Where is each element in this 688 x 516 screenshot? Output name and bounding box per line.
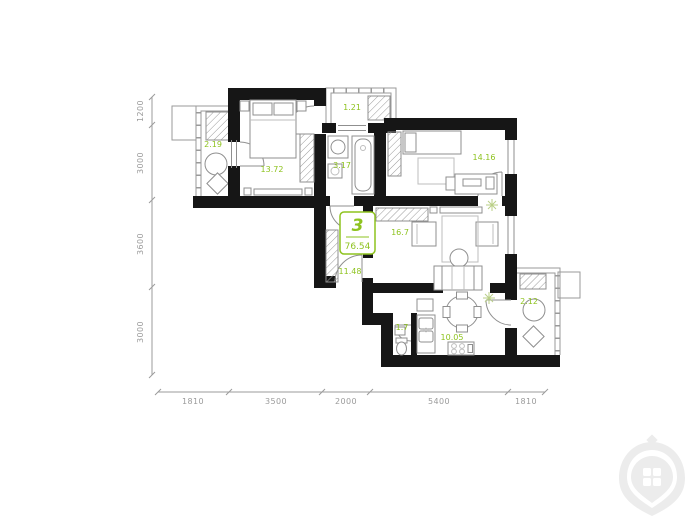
dim-left-0: 1200 xyxy=(136,100,145,122)
monitor xyxy=(463,179,481,186)
dim-left-2: 3600 xyxy=(136,233,145,255)
dim-left-1: 3000 xyxy=(136,152,145,174)
floorplan-drawing: 2.19 13.72 1.21 3.17 14.16 16.7 11.48 1.… xyxy=(0,0,688,516)
dim-bottom-3: 5400 xyxy=(428,397,450,406)
hallway-furniture xyxy=(326,230,338,282)
dimension-bottom: 1810 3500 2000 5400 1810 xyxy=(155,389,548,406)
wardrobe-hatch xyxy=(326,230,338,282)
sofa-armrest xyxy=(434,266,442,290)
area-label-bedroom-right: 14.16 xyxy=(473,153,496,162)
balcony-right xyxy=(517,268,580,355)
tv-console xyxy=(254,189,302,195)
dim-bottom-2: 2000 xyxy=(335,397,357,406)
balcony-ledge xyxy=(172,106,196,140)
area-label-balcony-right: 2.12 xyxy=(520,297,538,306)
speaker xyxy=(244,188,251,195)
dining-table xyxy=(446,296,478,328)
storage-hatch-box xyxy=(520,274,546,289)
wardrobe-hatch xyxy=(300,134,314,182)
balcony-chair xyxy=(523,326,544,347)
fridge xyxy=(417,299,433,311)
balcony-ledge xyxy=(558,272,580,298)
sofa-armrest xyxy=(474,266,482,290)
sink-bowl xyxy=(419,331,433,342)
kitchen-fixtures xyxy=(417,292,495,355)
chair xyxy=(474,307,481,318)
washbasin xyxy=(331,140,345,154)
area-label-wc: 1.7 xyxy=(396,323,409,332)
chair xyxy=(457,325,468,332)
bedroom-right-furniture xyxy=(388,131,497,194)
area-label-bathroom: 3.17 xyxy=(333,161,351,170)
dimension-left: 1200 3000 3600 3000 xyxy=(136,94,155,378)
brand-watermark-pin-icon xyxy=(619,434,685,516)
toilet-bowl xyxy=(397,342,407,355)
area-label-balcony-top: 1.21 xyxy=(343,103,361,112)
chair xyxy=(457,292,468,299)
chair xyxy=(443,307,450,318)
area-label-living-room: 16.7 xyxy=(391,228,409,237)
speaker xyxy=(305,188,312,195)
stove-panel xyxy=(468,345,473,353)
balcony-chair xyxy=(207,173,228,194)
storage-hatch-box xyxy=(368,96,390,120)
wardrobe-hatch xyxy=(388,132,401,176)
speaker xyxy=(430,207,437,213)
area-label-kitchen: 10.05 xyxy=(441,333,464,342)
snowflake-icon xyxy=(483,292,495,304)
pillow xyxy=(253,103,272,115)
walls xyxy=(193,88,560,367)
armchair xyxy=(412,222,436,246)
badge-room-count: 3 xyxy=(352,216,364,236)
dim-left-3: 3000 xyxy=(136,321,145,343)
balcony-table xyxy=(205,153,227,175)
snowflake-icon xyxy=(486,199,498,211)
floorplan-page: 2.19 13.72 1.21 3.17 14.16 16.7 11.48 1.… xyxy=(0,0,688,516)
pc-tower xyxy=(486,177,494,189)
bedroom-left-furniture xyxy=(240,100,314,195)
unit-area-badge: 3 76.54 xyxy=(340,212,375,254)
armchair xyxy=(476,222,498,246)
nightstand xyxy=(240,101,249,111)
bathtub-inner xyxy=(355,139,371,191)
coffee-table xyxy=(450,249,468,267)
dim-bottom-1: 3500 xyxy=(265,397,287,406)
dim-bottom-0: 1810 xyxy=(182,397,204,406)
pillow xyxy=(274,103,293,115)
desk-chair xyxy=(446,177,455,190)
badge-total-area: 76.54 xyxy=(345,242,371,252)
wardrobe-hatch xyxy=(376,208,428,221)
tv-console xyxy=(440,207,482,213)
nightstand xyxy=(297,101,306,111)
area-label-hallway: 11.48 xyxy=(339,267,362,276)
door-balcony-right xyxy=(486,300,511,325)
area-label-balcony-left: 2.19 xyxy=(204,140,222,149)
sink-bowl xyxy=(419,318,433,329)
area-label-bedroom-left: 13.72 xyxy=(261,165,284,174)
living-room-furniture xyxy=(376,199,498,290)
balcony-top xyxy=(326,88,396,123)
dim-bottom-4: 1810 xyxy=(515,397,537,406)
pillow xyxy=(405,133,416,152)
